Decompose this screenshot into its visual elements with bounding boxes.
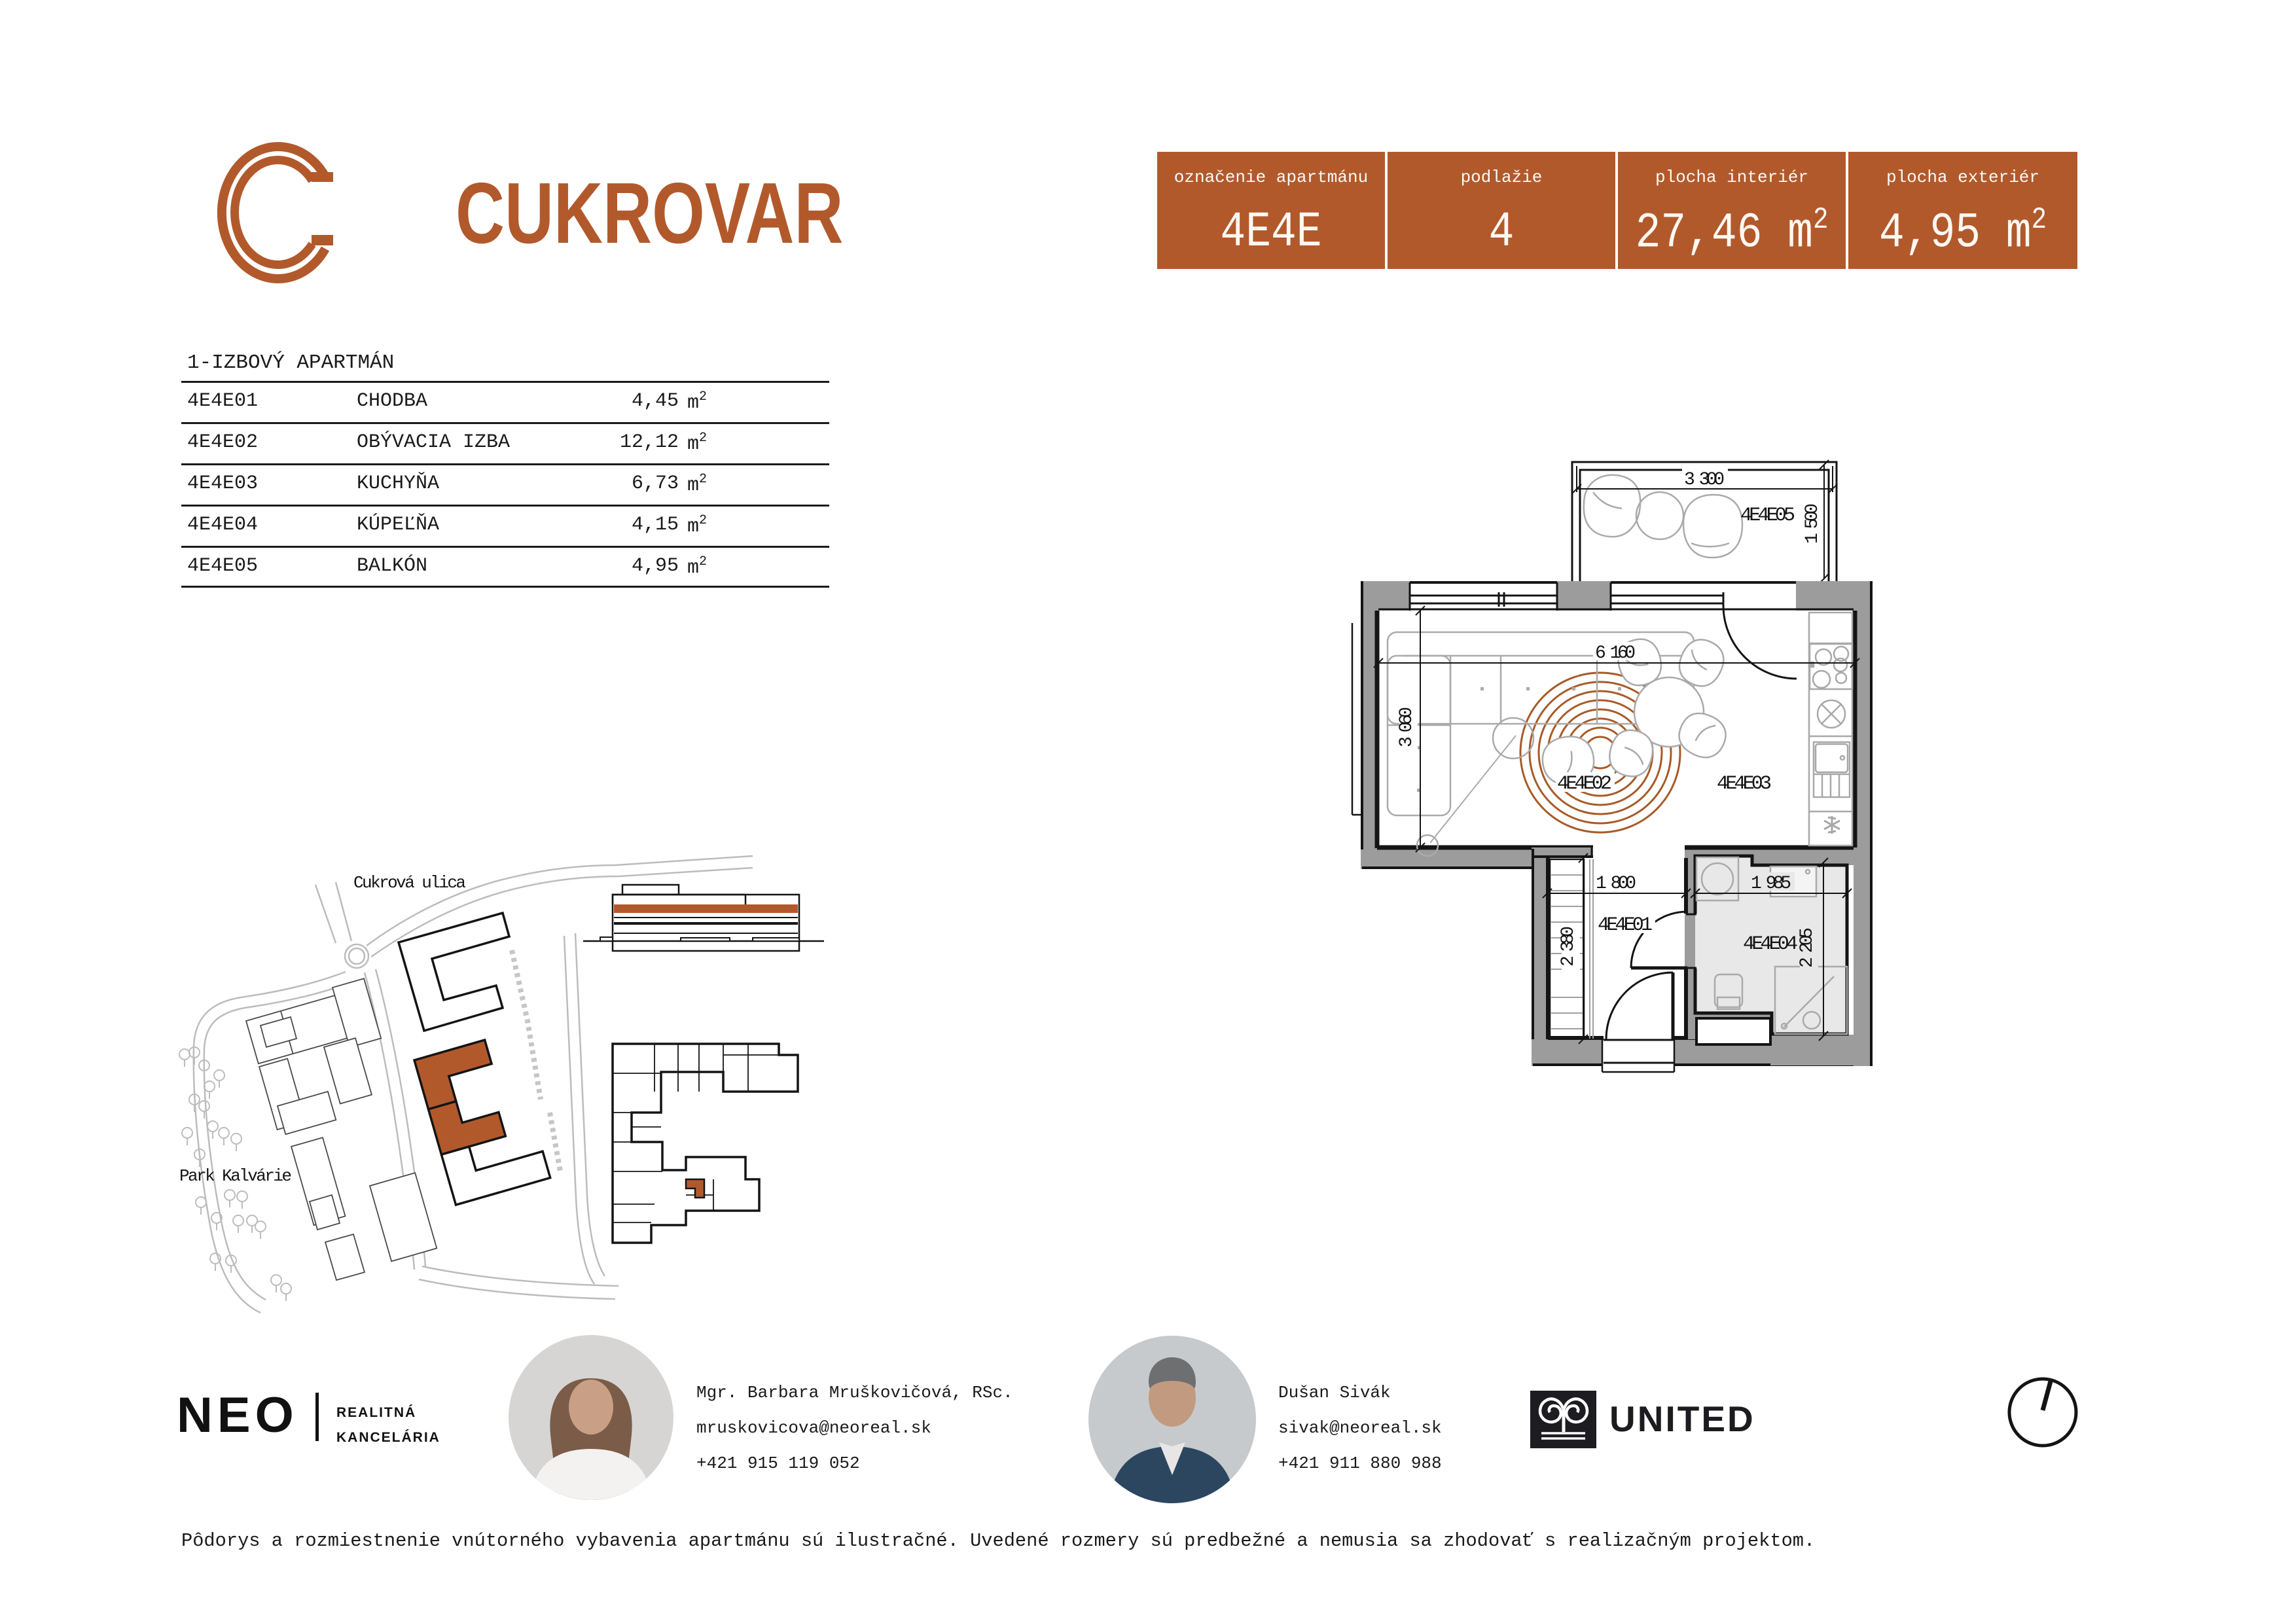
svg-text:Park Kalvárie: Park Kalvárie xyxy=(179,1166,292,1186)
svg-text:1 500: 1 500 xyxy=(1803,503,1823,544)
svg-text:4E4E05: 4E4E05 xyxy=(1740,505,1795,527)
svg-text:Cukrová ulica: Cukrová ulica xyxy=(353,873,466,893)
svg-text:3 300: 3 300 xyxy=(1684,470,1725,490)
svg-text:6 160: 6 160 xyxy=(1595,643,1636,664)
svg-text:4E4E02: 4E4E02 xyxy=(1557,773,1612,795)
svg-text:2 205: 2 205 xyxy=(1797,927,1818,968)
svg-text:3 060: 3 060 xyxy=(1397,707,1417,747)
svg-text:2 380: 2 380 xyxy=(1558,926,1579,967)
svg-text:1 985: 1 985 xyxy=(1751,874,1791,894)
svg-text:1 800: 1 800 xyxy=(1596,874,1636,894)
svg-text:4E4E01: 4E4E01 xyxy=(1598,914,1653,936)
svg-text:4E4E04: 4E4E04 xyxy=(1743,933,1798,955)
svg-text:4E4E03: 4E4E03 xyxy=(1717,773,1772,795)
